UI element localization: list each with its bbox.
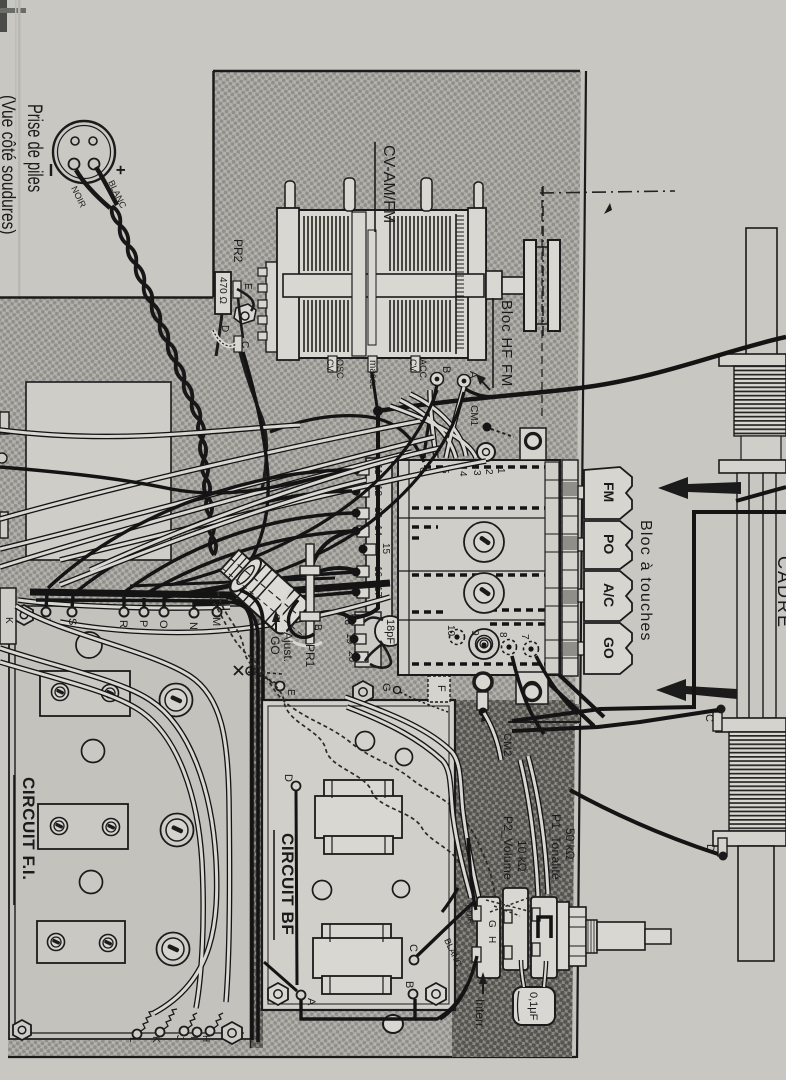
svg-text:J: J — [174, 1035, 185, 1040]
svg-text:Bloc HF FM: Bloc HF FM — [498, 300, 515, 387]
svg-text:GO: GO — [268, 636, 282, 655]
svg-text:9: 9 — [469, 630, 480, 636]
svg-text:P: P — [137, 620, 149, 627]
svg-text:Interr.: Interr. — [473, 999, 487, 1030]
svg-text:O: O — [157, 620, 169, 629]
svg-text:L: L — [127, 1037, 138, 1043]
svg-text:C: C — [407, 944, 419, 952]
svg-text:S: S — [66, 618, 78, 625]
svg-text:R: R — [117, 620, 129, 628]
svg-text:H: H — [200, 1035, 211, 1042]
svg-text:E: E — [242, 283, 253, 290]
svg-text:Ajust.: Ajust. — [281, 632, 295, 662]
svg-text:GO: GO — [601, 637, 617, 659]
svg-text:G: G — [486, 920, 497, 928]
svg-text:CM2: CM2 — [501, 733, 513, 756]
svg-text:4: 4 — [457, 471, 468, 477]
svg-text:FM: FM — [601, 482, 617, 502]
svg-text:CV: CV — [408, 359, 418, 372]
svg-text:CIRCUIT BF: CIRCUIT BF — [278, 833, 297, 935]
svg-text:3: 3 — [471, 470, 482, 476]
svg-text:15: 15 — [380, 543, 391, 555]
svg-text:A: A — [315, 586, 326, 593]
svg-text:50 kΩ: 50 kΩ — [563, 828, 577, 860]
svg-text:I: I — [188, 1036, 199, 1039]
svg-text:K: K — [150, 1036, 161, 1043]
svg-text:470 Ω: 470 Ω — [217, 277, 228, 304]
svg-text:Prise de piles: Prise de piles — [23, 104, 46, 192]
svg-text:PO: PO — [601, 534, 617, 554]
svg-text:B: B — [312, 624, 323, 631]
svg-text:20: 20 — [346, 651, 357, 663]
svg-text:OSC.: OSC. — [335, 359, 345, 381]
svg-text:CM1: CM1 — [468, 405, 479, 427]
svg-text:18pF: 18pF — [384, 619, 396, 644]
svg-text:C: C — [703, 714, 715, 722]
svg-text:A: A — [305, 998, 317, 1006]
svg-text:D: D — [282, 774, 294, 782]
svg-text:E: E — [285, 689, 296, 696]
svg-text:(Vue côté soudures): (Vue côté soudures) — [0, 95, 19, 235]
svg-text:0,1μF: 0,1μF — [527, 992, 539, 1021]
svg-text:+: + — [111, 165, 130, 175]
svg-text:F: F — [435, 685, 447, 692]
svg-text:H: H — [486, 936, 497, 943]
svg-text:K: K — [3, 617, 14, 624]
svg-text:P1_Tonalité: P1_Tonalité — [549, 814, 563, 880]
svg-text:2: 2 — [483, 469, 494, 475]
svg-text:1: 1 — [495, 468, 506, 474]
svg-text:PR1: PR1 — [303, 644, 317, 668]
svg-text:10: 10 — [445, 625, 456, 637]
svg-text:B: B — [440, 366, 452, 373]
svg-text:19: 19 — [344, 633, 355, 645]
svg-text:N: N — [187, 622, 199, 630]
svg-text:10 kΩ: 10 kΩ — [515, 840, 529, 872]
svg-text:8: 8 — [497, 632, 508, 638]
svg-text:CIRCUIT F.I.: CIRCUIT F.I. — [19, 777, 38, 881]
svg-text:CADRE: CADRE — [774, 556, 786, 629]
svg-text:CV-AM/FM: CV-AM/FM — [380, 145, 397, 223]
svg-text:ACC.: ACC. — [418, 359, 428, 381]
svg-text:P2_Volume: P2_Volume — [501, 816, 515, 880]
svg-text:G: G — [380, 683, 392, 692]
svg-text:PR2: PR2 — [231, 239, 245, 263]
svg-text:7: 7 — [519, 634, 530, 640]
svg-text:A: A — [467, 371, 479, 379]
svg-text:CV: CV — [325, 359, 335, 372]
svg-text:M: M — [210, 617, 222, 626]
svg-text:B: B — [403, 981, 415, 988]
svg-text:A/C: A/C — [601, 583, 617, 607]
svg-text:Bloc à touches: Bloc à touches — [637, 520, 654, 642]
